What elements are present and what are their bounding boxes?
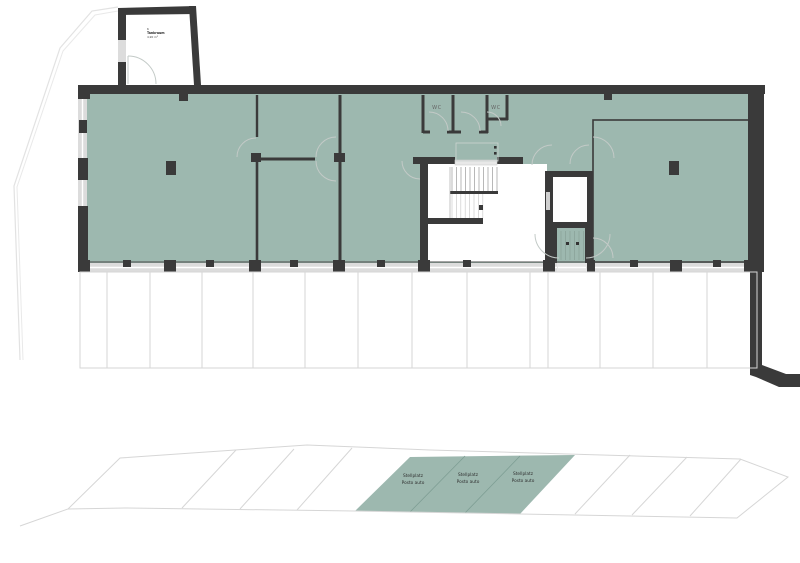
stall-2-label-it: Posto auto bbox=[457, 479, 480, 485]
stall-3-label-de: Stellplatz bbox=[513, 471, 534, 477]
column-left bbox=[166, 161, 176, 175]
floor-plan-page: 6 Tankraum 4,90 m² bbox=[0, 0, 800, 563]
floor-plan-drawing: 6 Tankraum 4,90 m² bbox=[0, 0, 800, 563]
top-wall bbox=[78, 85, 765, 94]
carport-row bbox=[80, 272, 757, 368]
shaft-room-floor bbox=[553, 177, 587, 222]
stall-1-label-it: Posto auto bbox=[402, 480, 425, 486]
stall-1-label-de: Stellplatz bbox=[403, 473, 424, 479]
annex-room-area: 4,90 m² bbox=[147, 35, 158, 39]
stall-3-label-it: Posto auto bbox=[512, 478, 535, 484]
wc-label-left: WC bbox=[432, 105, 442, 111]
annex-room: 6 Tankraum 4,90 m² bbox=[118, 6, 201, 85]
site-parking-strip: Stellplatz Posto auto Stellplatz Posto a… bbox=[20, 445, 788, 526]
stall-2-label-de: Stellplatz bbox=[458, 472, 479, 478]
column-right bbox=[669, 161, 679, 175]
right-wall bbox=[748, 85, 764, 272]
stair-core-floor bbox=[428, 164, 547, 262]
wc-label-right: WC bbox=[491, 105, 501, 111]
